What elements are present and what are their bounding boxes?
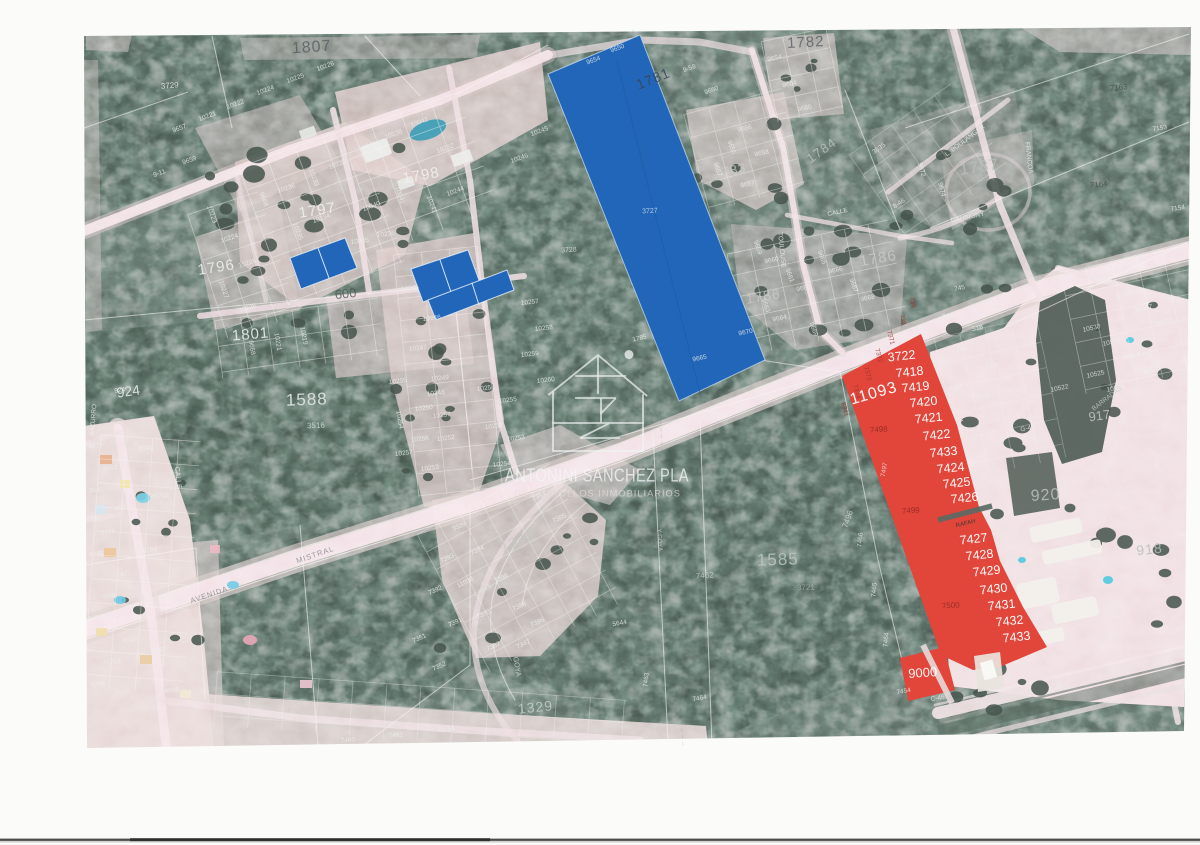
svg-text:3728: 3728 [561,247,577,255]
svg-text:1585: 1585 [757,549,799,569]
svg-text:4048: 4048 [164,686,179,694]
svg-text:7420: 7420 [909,394,938,411]
svg-text:7430: 7430 [979,581,1008,598]
svg-text:7418: 7418 [895,364,924,381]
svg-text:7463: 7463 [642,672,650,687]
svg-text:7164: 7164 [1090,179,1109,190]
svg-text:920: 920 [1030,486,1061,505]
svg-text:7499: 7499 [902,505,921,515]
svg-text:7433: 7433 [929,444,958,461]
svg-text:7460: 7460 [341,737,356,745]
svg-text:7163: 7163 [1110,82,1129,93]
svg-text:7428: 7428 [965,547,994,564]
svg-text:7422: 7422 [922,427,951,444]
svg-text:7425: 7425 [942,475,971,492]
svg-text:7432: 7432 [995,613,1024,630]
svg-text:1782: 1782 [787,33,825,52]
svg-text:7465: 7465 [870,582,878,597]
svg-text:1588: 1588 [286,389,328,409]
svg-text:10254: 10254 [437,726,456,734]
svg-text:4277: 4277 [88,442,103,450]
svg-text:7419: 7419 [901,379,930,396]
svg-text:4043: 4043 [138,444,153,452]
svg-text:7426: 7426 [950,490,979,507]
svg-text:918: 918 [1136,540,1164,559]
svg-text:917: 917 [1088,407,1112,425]
svg-text:3721: 3721 [797,583,816,593]
svg-text:7421: 7421 [914,410,943,427]
svg-text:3729: 3729 [161,80,180,91]
svg-text:9000: 9000 [908,664,938,681]
svg-text:5784: 5784 [90,680,105,688]
svg-text:877: 877 [120,571,132,579]
svg-text:7429: 7429 [972,563,1001,580]
svg-text:3722: 3722 [887,348,916,365]
svg-text:1807: 1807 [291,38,332,58]
svg-text:4045: 4045 [88,550,103,558]
svg-text:7424: 7424 [936,460,965,477]
svg-text:3727: 3727 [642,208,658,216]
svg-text:5784: 5784 [142,546,157,554]
svg-text:7427: 7427 [959,531,988,548]
svg-text:3663: 3663 [102,464,117,472]
svg-text:4043: 4043 [122,636,137,644]
svg-text:ANTONINI SÁNCHEZ PLA: ANTONINI SÁNCHEZ PLA [505,466,689,486]
svg-text:7461: 7461 [389,732,404,740]
svg-text:8774: 8774 [100,528,115,536]
svg-text:DESARROLLOS INMOBILIARIOS: DESARROLLOS INMOBILIARIOS [514,489,681,500]
svg-text:3940: 3940 [88,486,103,494]
svg-text:3516: 3516 [307,421,326,431]
svg-text:5774: 5774 [88,614,103,622]
svg-text:600: 600 [334,285,357,302]
svg-text:7500: 7500 [942,600,961,610]
svg-text:7433: 7433 [1002,629,1031,646]
svg-text:4047: 4047 [150,646,165,654]
svg-text:7498: 7498 [870,424,889,434]
svg-text:7462: 7462 [696,570,715,580]
svg-text:7431: 7431 [987,597,1016,614]
svg-text:7464: 7464 [882,632,890,647]
svg-text:4046: 4046 [102,592,117,600]
svg-text:7466: 7466 [856,532,864,547]
svg-text:4044: 4044 [158,594,173,602]
